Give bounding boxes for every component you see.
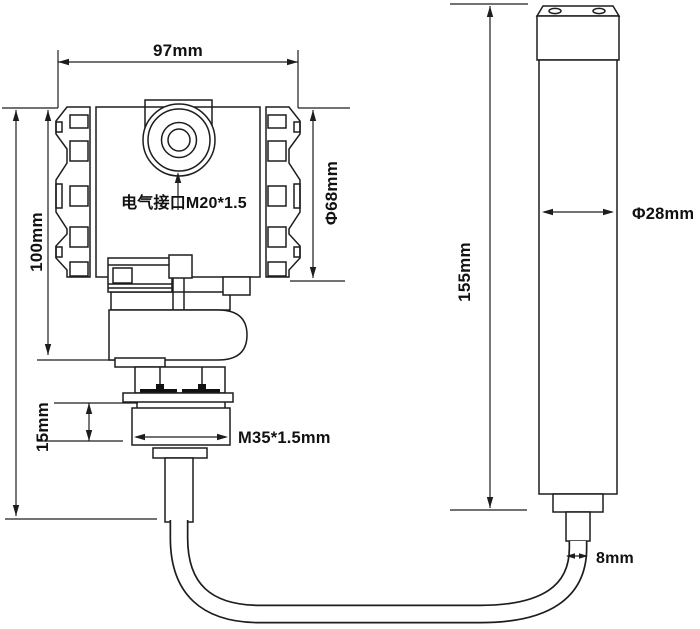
stem-tube [165, 458, 193, 522]
label-cable-diameter: 8mm [596, 550, 634, 567]
bolt-head [156, 384, 164, 389]
label-housing-height: 100mm [27, 212, 46, 272]
terminal-block [108, 258, 172, 292]
body-step [115, 358, 165, 367]
dimensional-drawing: 97mm 100mm Φ68mm 电气接口M20*1.5 15mm M35*1.… [0, 0, 700, 629]
probe-step-1 [553, 494, 603, 512]
housing-right-cap [266, 107, 300, 277]
probe [537, 6, 619, 541]
housing-step [223, 277, 250, 295]
flange-plate [123, 393, 233, 402]
rounded-body [109, 310, 247, 360]
bolt-head [198, 384, 206, 389]
label-thread-spec: M35*1.5mm [238, 429, 331, 447]
label-probe-diameter: Φ28mm [632, 205, 694, 223]
terminal-box [169, 255, 192, 278]
label-housing-width: 97mm [153, 41, 203, 60]
collar [153, 448, 207, 458]
electrical-port-outer-ring [143, 104, 215, 176]
label-electrical-interface: 电气接口M20*1.5 [121, 193, 247, 212]
probe-step-2 [566, 512, 590, 541]
process-connection [108, 255, 250, 522]
technical-drawing-canvas: 97mm 100mm Φ68mm 电气接口M20*1.5 15mm M35*1.… [0, 0, 700, 629]
probe-tube [539, 60, 617, 494]
housing-left-cap [56, 107, 90, 277]
label-housing-diameter: Φ68mm [322, 161, 341, 225]
hex-nut [132, 408, 230, 445]
probe-cap [537, 16, 619, 60]
cable [179, 520, 578, 614]
neck [111, 292, 230, 310]
label-probe-length: 155mm [455, 242, 474, 302]
label-nut-height: 15mm [33, 402, 52, 452]
